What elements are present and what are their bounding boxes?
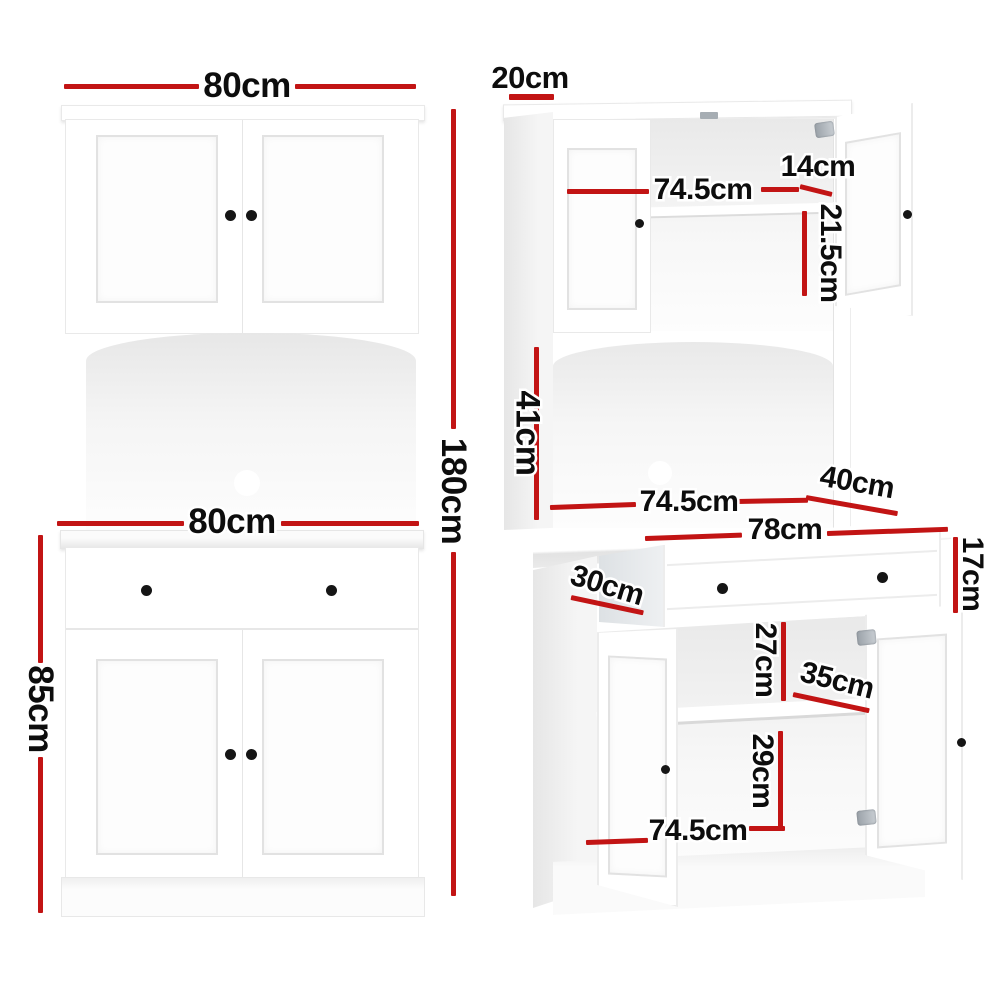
door-knob-icon bbox=[635, 219, 644, 228]
hinge-icon bbox=[856, 629, 876, 646]
base-body bbox=[65, 547, 419, 879]
door-panel bbox=[96, 659, 218, 855]
hutch-body bbox=[65, 119, 419, 334]
dim-hutch-door-width-label: 14cm bbox=[781, 150, 856, 184]
door-knob-icon bbox=[246, 210, 257, 221]
drawer-knob-icon bbox=[141, 585, 152, 596]
hutch-door-closed bbox=[553, 119, 651, 333]
dim-hutch-width-label: 74.5cm bbox=[654, 173, 753, 207]
dim-bench-width-label: 80cm bbox=[188, 502, 276, 542]
dim-hutch-height-line bbox=[802, 211, 807, 296]
plinth bbox=[61, 877, 425, 917]
dim-drawer-height-label: 17cm bbox=[955, 537, 989, 612]
dim-top-width-line-right bbox=[295, 84, 416, 89]
dim-top-depth-label: 20cm bbox=[491, 60, 568, 96]
cable-hole bbox=[648, 461, 672, 485]
door-knob-icon bbox=[661, 765, 670, 774]
base-side-panel bbox=[533, 556, 597, 908]
dim-lower-compartment-label: 29cm bbox=[745, 734, 779, 809]
door-knob-icon bbox=[246, 749, 257, 760]
door-knob-icon bbox=[903, 210, 912, 219]
dim-alcove-height-label: 41cm bbox=[508, 391, 547, 476]
hutch-door-left bbox=[66, 120, 243, 333]
drawer-knob-icon bbox=[717, 583, 728, 594]
cable-hole bbox=[234, 470, 260, 496]
door-knob-icon bbox=[225, 749, 236, 760]
dim-upper-compartment-label: 27cm bbox=[748, 623, 782, 698]
dim-total-height-label: 180cm bbox=[433, 438, 473, 544]
dimension-diagram: 80cm 180cm 80cm 85cm bbox=[0, 0, 1000, 1000]
dim-top-width-line-left bbox=[64, 84, 199, 89]
door-panel bbox=[877, 634, 947, 849]
drawer-knob-icon bbox=[326, 585, 337, 596]
hutch-door-right bbox=[243, 120, 418, 333]
dim-base-height-line-bottom bbox=[38, 757, 43, 913]
dim-top-width-label: 80cm bbox=[203, 66, 291, 106]
door-panel bbox=[262, 659, 384, 855]
base-door-open-left bbox=[597, 627, 678, 907]
base-door-right bbox=[243, 630, 418, 878]
dim-bench-width-line-right bbox=[281, 521, 419, 526]
dim-total-height-line-bottom bbox=[451, 552, 456, 896]
drawer-front bbox=[66, 553, 418, 630]
drawer-mold-line bbox=[667, 594, 937, 610]
dim-base-width-line-right bbox=[749, 826, 785, 831]
dim-base-height-line-top bbox=[38, 535, 43, 663]
hinge-icon bbox=[814, 121, 835, 138]
drawer-mold-line bbox=[667, 550, 937, 566]
door-panel bbox=[96, 135, 218, 303]
door-knob-icon bbox=[225, 210, 236, 221]
dim-hutch-width-line-right bbox=[761, 187, 799, 192]
hinge-icon bbox=[856, 809, 876, 826]
dim-base-height-label: 85cm bbox=[20, 665, 60, 753]
dim-alcove-width-label: 74.5cm bbox=[640, 485, 739, 519]
dim-base-width-label: 74.5cm bbox=[649, 814, 748, 848]
drawer-knob-icon bbox=[877, 572, 888, 583]
door-knob-icon bbox=[957, 738, 966, 747]
dim-hutch-width-line-left bbox=[567, 189, 649, 194]
wall-bracket bbox=[700, 112, 718, 119]
base-door-open-right bbox=[865, 602, 963, 882]
door-panel bbox=[567, 148, 637, 310]
dim-bench-width-line-left bbox=[57, 521, 184, 526]
dim-hutch-height-label: 21.5cm bbox=[813, 204, 847, 303]
dim-total-height-line-top bbox=[451, 109, 456, 429]
base-door-left bbox=[66, 630, 243, 878]
door-panel bbox=[262, 135, 384, 303]
dim-drawer-width-label: 78cm bbox=[748, 513, 823, 547]
